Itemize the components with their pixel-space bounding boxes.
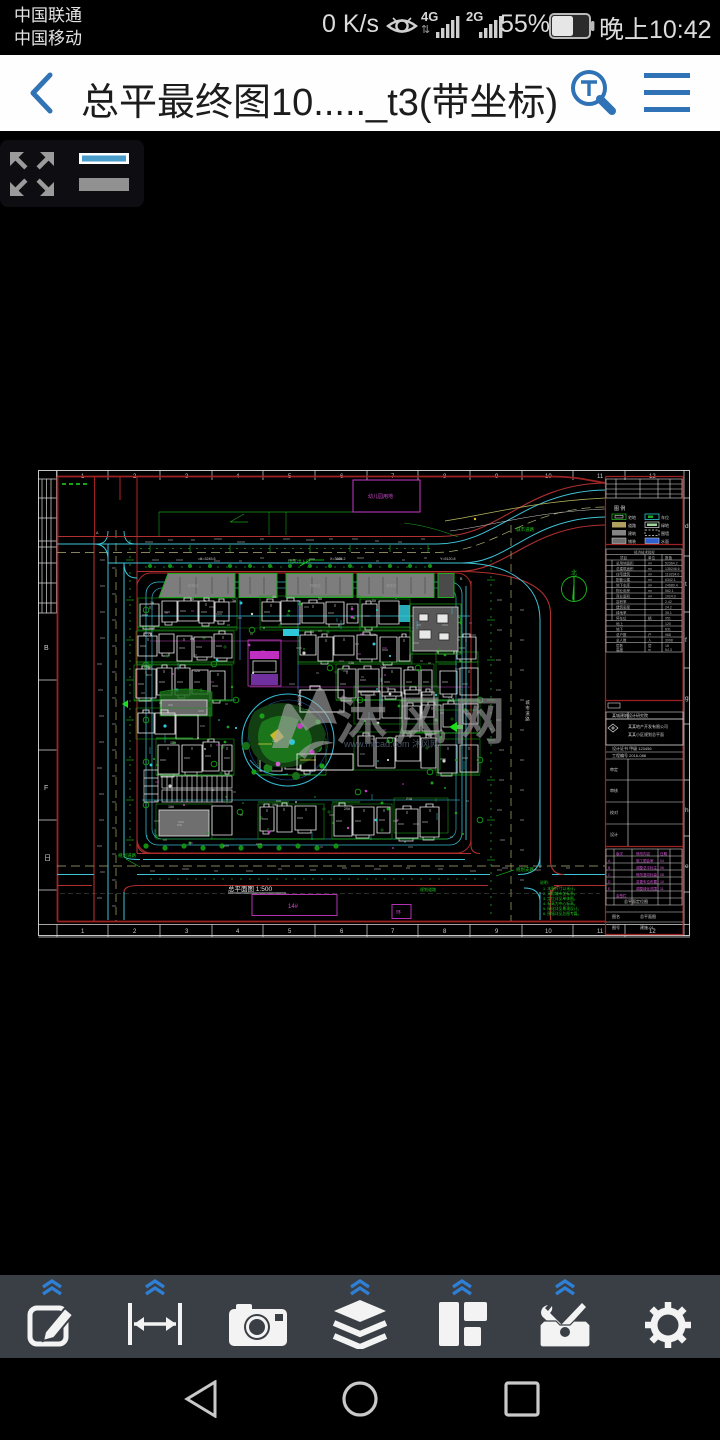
svg-text:24680.4: 24680.4 [665, 584, 678, 588]
svg-text:审核: 审核 [610, 787, 618, 793]
svg-text:总平面图: 总平面图 [640, 913, 656, 919]
svg-text:建筑密度: 建筑密度 [616, 605, 630, 610]
svg-text:商业面积: 商业面积 [616, 594, 630, 599]
svg-text:1024.0: 1024.0 [665, 595, 676, 599]
svg-text:11#: 11# [146, 665, 152, 669]
svg-text:修改竖向标高: 修改竖向标高 [636, 872, 657, 877]
svg-text:3#: 3# [232, 599, 236, 603]
svg-text:水面: 水面 [661, 538, 669, 544]
svg-text:户: 户 [648, 632, 652, 637]
svg-text:单位: 单位 [648, 555, 656, 560]
svg-text:工程编号 2016-088: 工程编号 2016-088 [612, 752, 647, 758]
svg-text:6: 6 [340, 929, 344, 935]
svg-text:119234.0: 119234.0 [665, 573, 679, 577]
svg-text:18#: 18# [168, 805, 174, 809]
svg-text:日期: 日期 [660, 851, 668, 856]
svg-text:2. 采用城市坐标系。: 2. 采用城市坐标系。 [543, 891, 578, 896]
svg-text:A: A [96, 531, 99, 535]
svg-text:6#: 6# [372, 599, 376, 603]
svg-text:08: 08 [660, 873, 664, 877]
svg-text:m²: m² [648, 584, 653, 588]
svg-text:停车位: 停车位 [310, 583, 321, 588]
svg-text:审定: 审定 [610, 766, 618, 772]
svg-text:总用地面积: 总用地面积 [616, 561, 634, 566]
svg-text:停车位: 停车位 [386, 583, 397, 588]
svg-text:总户数: 总户数 [616, 632, 627, 637]
svg-text:06: 06 [660, 866, 664, 870]
svg-text:951: 951 [665, 617, 671, 621]
svg-text:地上: 地上 [616, 621, 624, 626]
svg-text:11: 11 [597, 929, 604, 935]
svg-text:3. 定位详见单体图。: 3. 定位详见单体图。 [543, 896, 578, 901]
svg-text:135246.6: 135246.6 [665, 567, 680, 571]
svg-text:校对: 校对 [610, 809, 618, 815]
svg-text:物业用房: 物业用房 [616, 588, 630, 593]
svg-text:道路: 道路 [628, 522, 636, 528]
svg-text:54.3: 54.3 [665, 648, 672, 652]
svg-text:围墙: 围墙 [661, 530, 669, 536]
svg-text:规划道路: 规划道路 [420, 886, 436, 892]
svg-text:8#: 8# [190, 637, 194, 641]
svg-text:经济技术指标: 经济技术指标 [634, 550, 655, 555]
svg-text:14#: 14# [380, 665, 386, 669]
svg-text:9: 9 [495, 929, 499, 935]
svg-text:6. 围墙详见总图专篇。: 6. 围墙详见总图专篇。 [543, 911, 581, 916]
svg-text:小区出入口: 小区出入口 [288, 558, 311, 565]
svg-text:9#: 9# [310, 630, 314, 634]
svg-text:m: m [648, 648, 651, 652]
svg-text:北: 北 [571, 569, 577, 577]
svg-text:会签栏: 会签栏 [616, 893, 627, 898]
svg-text:绿地率: 绿地率 [616, 610, 627, 615]
svg-text:7: 7 [391, 929, 395, 935]
svg-text:2: 2 [133, 929, 137, 935]
svg-text:车位: 车位 [661, 514, 669, 520]
svg-text:建施-01: 建施-01 [640, 924, 655, 930]
svg-text:19#: 19# [272, 803, 278, 807]
svg-text:4. 标高为中心标高。: 4. 标高为中心标高。 [543, 901, 578, 906]
svg-text:F: F [44, 785, 48, 792]
svg-text:m²: m² [648, 595, 653, 599]
svg-text:3: 3 [185, 929, 189, 935]
svg-text:铺装: 铺装 [628, 538, 636, 544]
svg-text:120: 120 [665, 622, 671, 626]
svg-text:变更车位布置: 变更车位布置 [636, 879, 657, 884]
svg-text:6342.1: 6342.1 [665, 578, 676, 582]
svg-text:m²: m² [648, 589, 653, 593]
svg-text:5. 绿化详见景观设计。: 5. 绿化详见景观设计。 [543, 906, 581, 911]
svg-text:m²: m² [648, 567, 653, 571]
svg-text:10: 10 [660, 880, 664, 884]
svg-text:总平面图 1:500: 总平面图 1:500 [228, 884, 272, 893]
svg-text:13#: 13# [348, 661, 354, 665]
svg-text:3098: 3098 [665, 639, 673, 643]
svg-text:562.1: 562.1 [665, 589, 674, 593]
svg-text:说明:: 说明: [540, 880, 549, 885]
svg-text:A: A [608, 859, 611, 863]
svg-text:4#: 4# [272, 595, 276, 599]
svg-text:图 例: 图 例 [614, 505, 625, 512]
svg-text:g: g [685, 695, 689, 702]
svg-text:14#: 14# [288, 904, 299, 910]
svg-text:8: 8 [443, 929, 447, 935]
svg-text:总人数: 总人数 [616, 638, 627, 643]
svg-text:52364.2: 52364.2 [665, 562, 678, 566]
svg-text:配套公建: 配套公建 [616, 577, 630, 582]
svg-text:h: h [685, 807, 689, 814]
svg-text:施工图会审: 施工图会审 [636, 858, 654, 863]
svg-text:规划道路: 规划道路 [118, 852, 136, 859]
svg-text:Y=5120.8: Y=5120.8 [440, 557, 456, 561]
svg-text:m²: m² [648, 562, 653, 566]
svg-text:968: 968 [665, 633, 671, 637]
svg-text:规划支路: 规划支路 [516, 866, 534, 873]
svg-text:11: 11 [660, 887, 664, 891]
svg-text:1. 本图尺寸以米计。: 1. 本图尺寸以米计。 [543, 886, 578, 891]
svg-text:设计: 设计 [610, 831, 618, 837]
svg-text:调整总平标注: 调整总平标注 [636, 865, 657, 870]
svg-text:住宅建筑: 住宅建筑 [616, 572, 630, 577]
svg-text:B: B [44, 645, 49, 652]
svg-text:总平面定位图: 总平面定位图 [624, 898, 648, 904]
svg-text:24.2: 24.2 [665, 606, 672, 610]
svg-text:某某小区规划总平面: 某某小区规划总平面 [628, 731, 664, 737]
svg-text:环: 环 [396, 910, 401, 916]
svg-text:地下: 地下 [616, 627, 624, 632]
svg-text:2#: 2# [190, 597, 194, 601]
svg-text:某某地产开发有限公司: 某某地产开发有限公司 [628, 723, 668, 729]
svg-text:10#: 10# [370, 633, 376, 637]
svg-text:12#: 12# [194, 669, 200, 673]
svg-text:m²: m² [648, 578, 653, 582]
svg-text:f: f [685, 637, 687, 644]
svg-text:建筑: 建筑 [628, 530, 636, 536]
svg-text:版次: 版次 [616, 851, 624, 856]
svg-text:20#: 20# [344, 807, 350, 811]
svg-text:d: d [685, 523, 689, 530]
svg-text:35.1: 35.1 [665, 611, 672, 615]
svg-text:总建筑面积: 总建筑面积 [616, 566, 634, 571]
svg-text:21#: 21# [406, 797, 412, 801]
svg-text:人: 人 [648, 638, 652, 643]
svg-text:e: e [685, 863, 689, 870]
svg-text:2.42: 2.42 [665, 600, 672, 604]
svg-text:E: E [608, 887, 611, 891]
svg-text:831: 831 [665, 628, 671, 632]
svg-text:设计证书 甲级 123456: 设计证书 甲级 123456 [612, 745, 652, 751]
svg-text:幼儿园用地: 幼儿园用地 [368, 493, 393, 500]
svg-text:停车位: 停车位 [616, 616, 627, 621]
svg-text:辆: 辆 [648, 616, 652, 621]
svg-text:调整绿化范围: 调整绿化范围 [636, 886, 657, 891]
svg-text:B: B [608, 866, 611, 870]
svg-text:11: 11 [597, 474, 604, 480]
svg-text:7#: 7# [148, 632, 152, 636]
svg-text:04: 04 [660, 859, 664, 863]
svg-text:宅地: 宅地 [628, 514, 636, 520]
svg-text:B: B [460, 577, 463, 581]
svg-text:某城建筑设计研究院: 某城建筑设计研究院 [612, 712, 648, 718]
svg-text:t: t [685, 581, 687, 588]
svg-text:中心绿地: 中心绿地 [298, 689, 303, 706]
svg-text:图号: 图号 [612, 924, 620, 930]
svg-text:数值: 数值 [665, 555, 673, 560]
svg-text:绿地: 绿地 [661, 522, 669, 528]
svg-text:日: 日 [44, 854, 51, 862]
svg-text:5#: 5# [318, 597, 322, 601]
svg-text:1: 1 [81, 929, 85, 935]
svg-text:城市道路: 城市道路 [525, 699, 531, 723]
svg-text:5: 5 [288, 929, 292, 935]
svg-text:C: C [608, 873, 611, 877]
svg-text:m²: m² [648, 573, 653, 577]
svg-text:修改内容: 修改内容 [636, 851, 650, 856]
svg-text:4: 4 [236, 929, 240, 935]
svg-text:容积率: 容积率 [616, 599, 627, 604]
svg-text:项目: 项目 [620, 555, 627, 560]
svg-text:10: 10 [545, 929, 552, 935]
svg-text:D: D [608, 880, 611, 884]
svg-text:图名: 图名 [612, 913, 620, 919]
svg-text:高度: 高度 [616, 647, 624, 652]
svg-text:停车位: 停车位 [188, 583, 199, 588]
svg-text:城市道路: 城市道路 [516, 526, 534, 533]
svg-text:www.mfcad.com 沐风网: www.mfcad.com 沐风网 [343, 738, 439, 749]
svg-text:X=3245.6: X=3245.6 [200, 557, 216, 561]
svg-text:地下车库: 地下车库 [616, 583, 630, 588]
